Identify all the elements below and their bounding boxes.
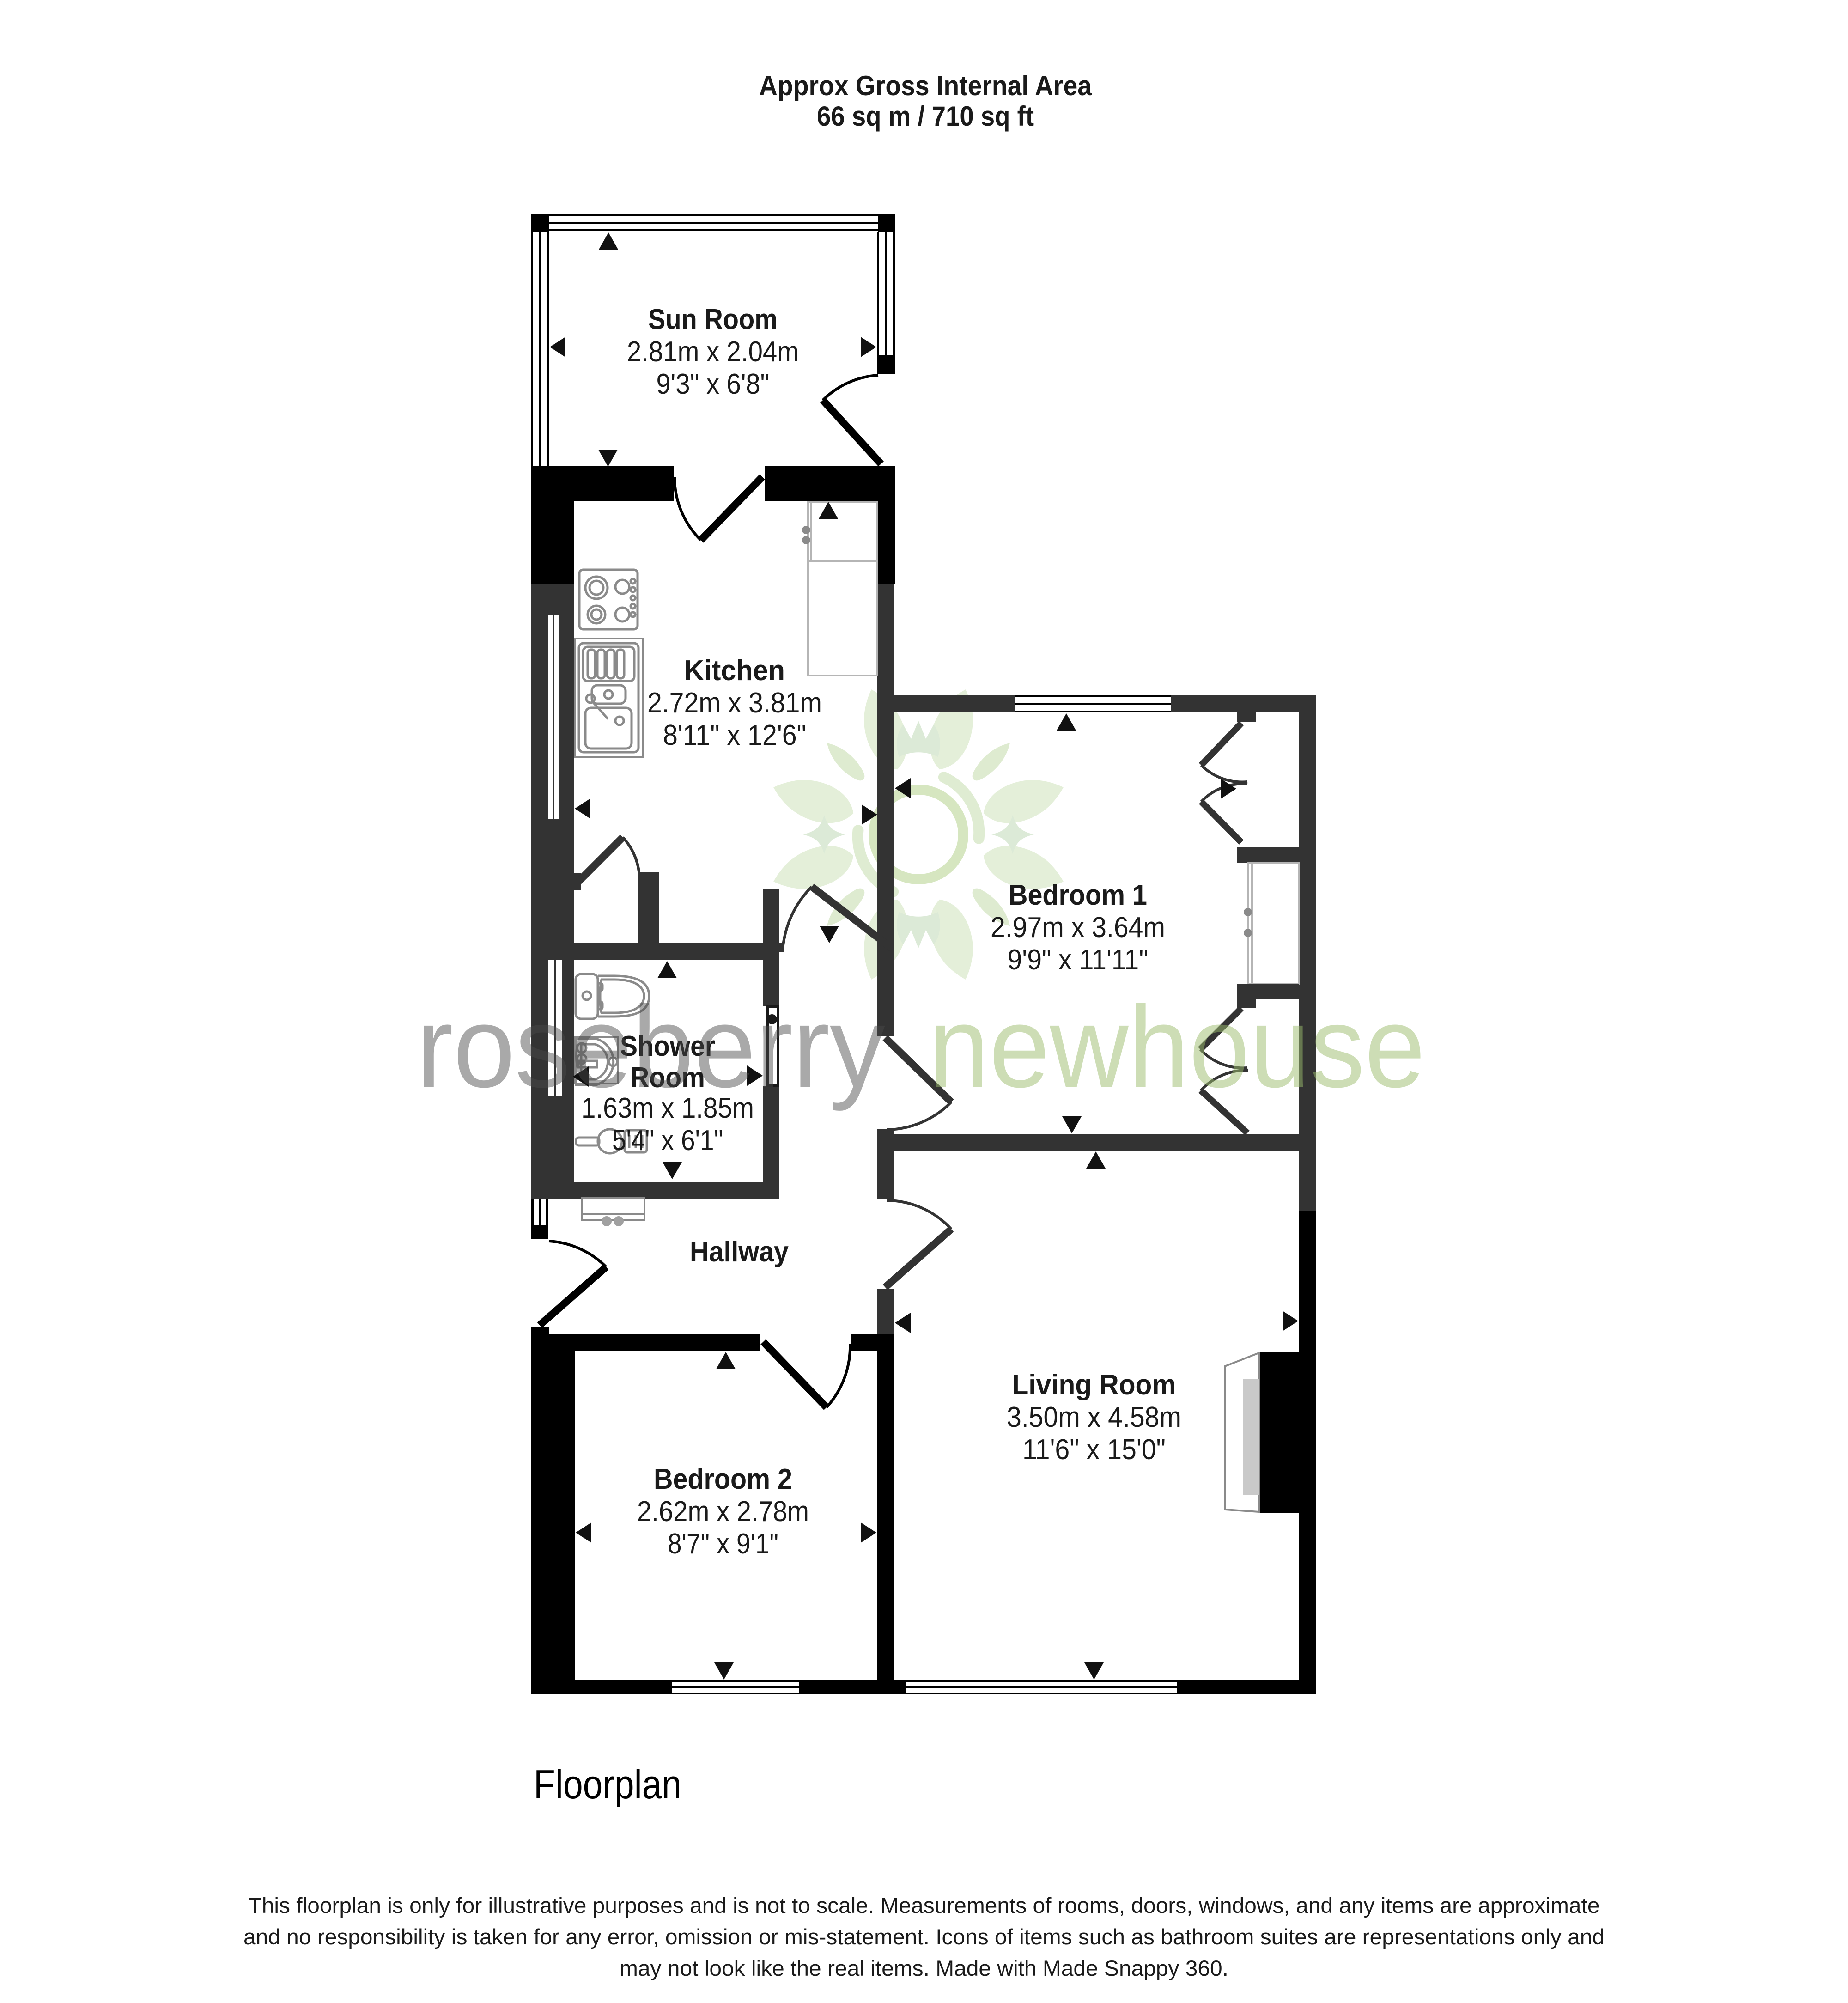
svg-text:2.62m x 2.78m: 2.62m x 2.78m bbox=[637, 1496, 809, 1528]
svg-text:Floorplan: Floorplan bbox=[534, 1761, 681, 1807]
svg-text:Approx Gross Internal Area: Approx Gross Internal Area bbox=[759, 70, 1092, 101]
svg-text:11'6" x 15'0": 11'6" x 15'0" bbox=[1022, 1434, 1166, 1466]
svg-text:and no responsibility is taken: and no responsibility is taken for any e… bbox=[243, 1924, 1605, 1949]
svg-text:8'11" x 12'6": 8'11" x 12'6" bbox=[663, 719, 806, 751]
svg-text:Hallway: Hallway bbox=[690, 1236, 789, 1268]
svg-text:9'9" x 11'11": 9'9" x 11'11" bbox=[1008, 944, 1149, 976]
svg-text:8'7" x 9'1": 8'7" x 9'1" bbox=[668, 1528, 778, 1560]
svg-text:Kitchen: Kitchen bbox=[684, 655, 785, 687]
svg-text:2.72m x 3.81m: 2.72m x 3.81m bbox=[647, 687, 822, 719]
svg-text:Bedroom 2: Bedroom 2 bbox=[654, 1463, 792, 1495]
svg-text:This floorplan is only for ill: This floorplan is only for illustrative … bbox=[249, 1893, 1600, 1918]
svg-text:Sun Room: Sun Room bbox=[648, 304, 778, 335]
svg-text:5'4" x 6'1": 5'4" x 6'1" bbox=[612, 1125, 723, 1157]
svg-text:3.50m x 4.58m: 3.50m x 4.58m bbox=[1007, 1401, 1181, 1433]
svg-text:roseberry: roseberry bbox=[416, 982, 885, 1111]
svg-text:2.97m x 3.64m: 2.97m x 3.64m bbox=[991, 912, 1165, 944]
svg-text:newhouse: newhouse bbox=[929, 982, 1425, 1111]
svg-text:Bedroom 1: Bedroom 1 bbox=[1009, 879, 1147, 911]
svg-text:may not look like the real ite: may not look like the real items. Made w… bbox=[620, 1956, 1228, 1980]
svg-text:2.81m x 2.04m: 2.81m x 2.04m bbox=[627, 336, 799, 368]
svg-text:Living Room: Living Room bbox=[1012, 1369, 1176, 1401]
svg-text:66 sq m / 710 sq ft: 66 sq m / 710 sq ft bbox=[817, 101, 1034, 132]
svg-text:9'3" x 6'8": 9'3" x 6'8" bbox=[657, 368, 770, 400]
